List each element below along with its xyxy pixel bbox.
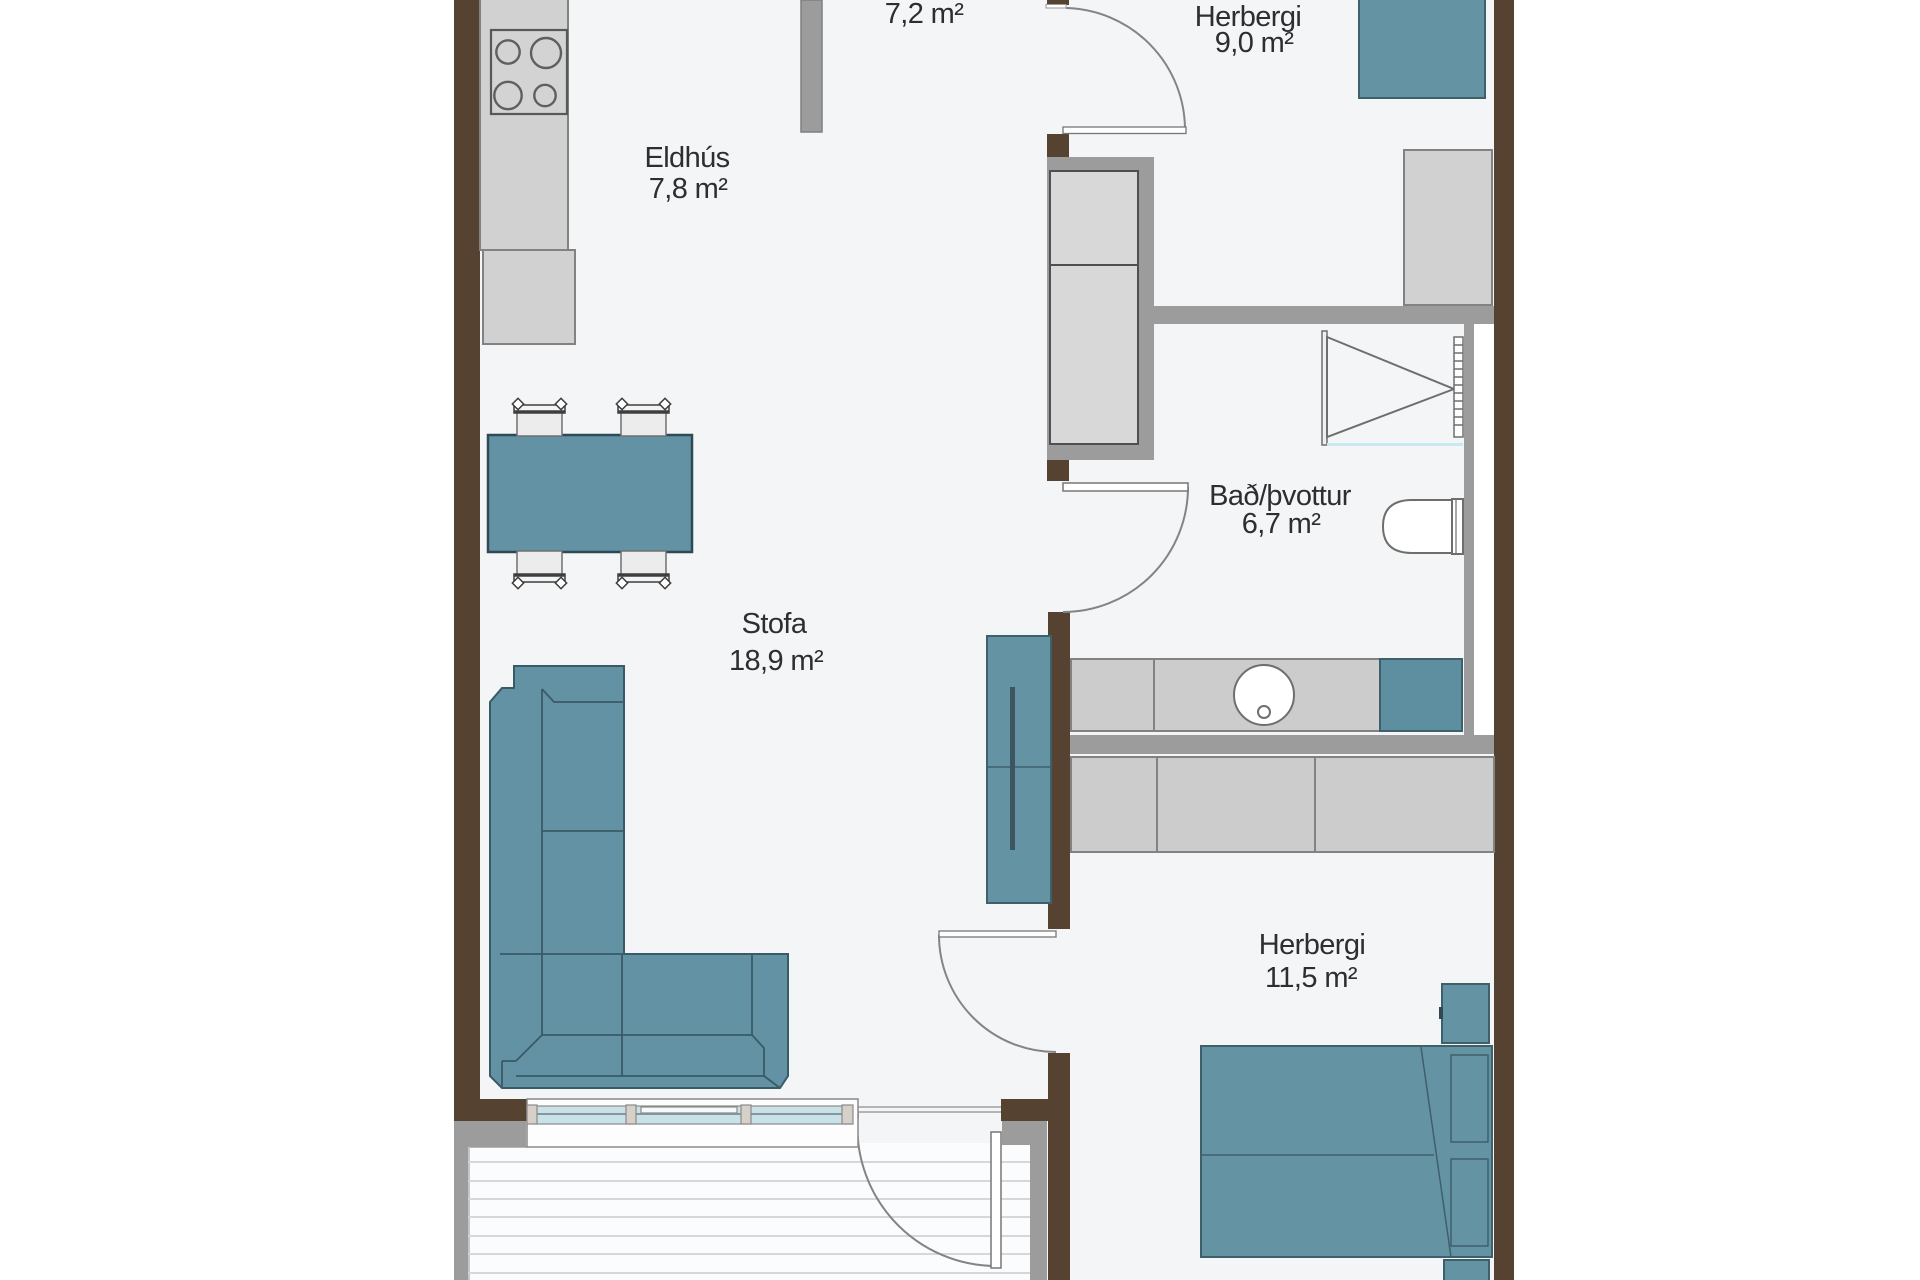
- svg-text:Stofa: Stofa: [742, 608, 808, 640]
- svg-text:18,9 m²: 18,9 m²: [729, 645, 824, 677]
- svg-text:7,2 m²: 7,2 m²: [885, 0, 965, 30]
- svg-text:Eldhús: Eldhús: [644, 142, 729, 174]
- svg-text:11,5 m²: 11,5 m²: [1265, 962, 1358, 994]
- svg-text:6,7 m²: 6,7 m²: [1242, 508, 1322, 540]
- svg-text:9,0 m²: 9,0 m²: [1215, 27, 1295, 59]
- svg-text:Herbergi: Herbergi: [1259, 929, 1365, 961]
- svg-text:7,8 m²: 7,8 m²: [649, 173, 729, 205]
